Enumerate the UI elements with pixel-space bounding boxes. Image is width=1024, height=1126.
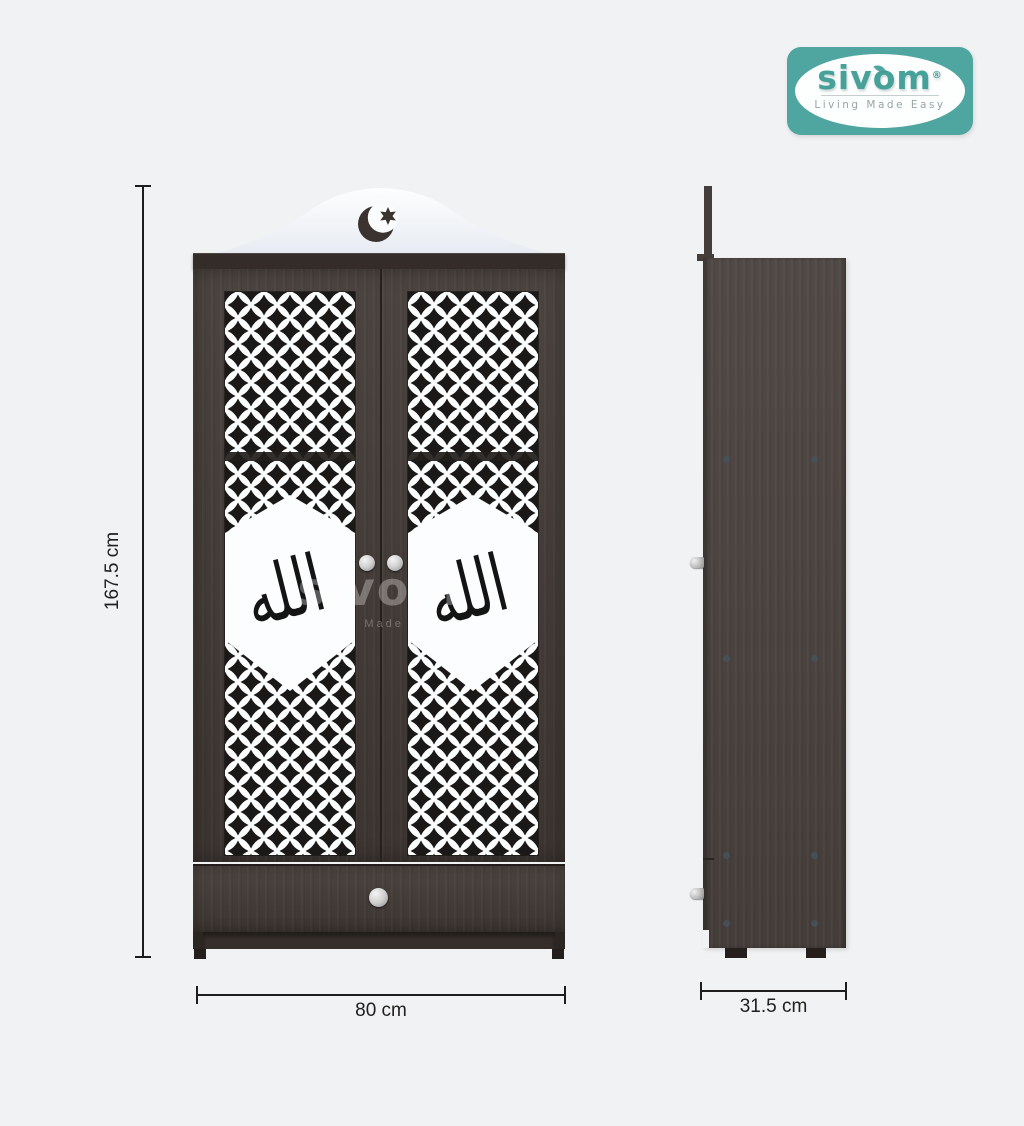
- screw-cap: [723, 852, 730, 859]
- side-front-foot: [725, 948, 747, 958]
- plinth-right-return: [555, 932, 565, 949]
- wardrobe-plinth: [203, 932, 555, 949]
- drawer-knob: [369, 888, 388, 907]
- side-door-knob: [690, 557, 704, 568]
- screw-cap: [811, 852, 818, 859]
- brand-name: sivom®: [817, 61, 943, 95]
- screw-cap: [811, 655, 818, 662]
- registered-trademark-icon: ®: [932, 70, 943, 81]
- side-back-foot: [806, 948, 826, 958]
- screw-cap: [723, 655, 730, 662]
- width-dimension-label: 80 cm: [197, 1000, 565, 1022]
- left-door-jali-panel: الله: [225, 292, 355, 855]
- screw-cap: [723, 456, 730, 463]
- side-plinth-notch: [703, 930, 709, 948]
- height-dimension-tick-bottom: [135, 956, 151, 958]
- side-drawer-knob: [690, 888, 704, 899]
- screw-cap: [811, 920, 818, 927]
- brand-logo-ellipse: sivom® Living Made Easy: [795, 54, 965, 128]
- depth-dimension-label: 31.5 cm: [701, 996, 846, 1018]
- screw-cap: [811, 456, 818, 463]
- left-door-knob: [359, 555, 375, 571]
- wardrobe-crest: [200, 186, 562, 258]
- height-dimension-tick-top: [135, 185, 151, 187]
- right-jali-svg: الله: [408, 292, 538, 855]
- brand-name-text: sivom: [817, 58, 932, 97]
- front-left-foot: [194, 949, 206, 959]
- screw-cap: [723, 920, 730, 927]
- right-door-knob: [387, 555, 403, 571]
- door-center-gap: [380, 269, 382, 862]
- front-right-foot: [552, 949, 564, 959]
- plinth-left-return: [193, 932, 203, 949]
- brand-logo: sivom® Living Made Easy: [787, 47, 973, 135]
- product-dimension-diagram: sivom® Living Made Easy الله: [0, 0, 1024, 1126]
- side-crest-edge: [704, 186, 712, 256]
- height-dimension-line: [142, 186, 144, 958]
- side-drawer-gap: [703, 858, 714, 860]
- width-dimension-line: [197, 994, 565, 996]
- right-door-jali-panel: الله: [408, 292, 538, 855]
- wardrobe-top-cap: [193, 253, 565, 269]
- depth-dimension-line: [701, 990, 846, 992]
- left-jali-svg: الله: [225, 292, 355, 855]
- height-dimension-label: 167.5 cm: [102, 511, 124, 631]
- brand-tagline: Living Made Easy: [795, 99, 965, 111]
- wardrobe-side-panel: [703, 258, 846, 948]
